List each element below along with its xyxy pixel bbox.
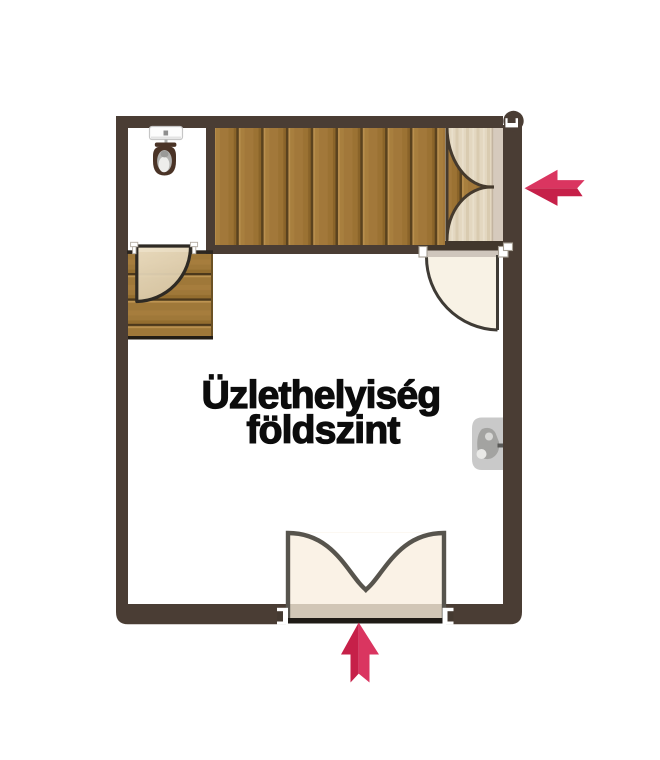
svg-text:földszint: földszint [246,409,400,452]
